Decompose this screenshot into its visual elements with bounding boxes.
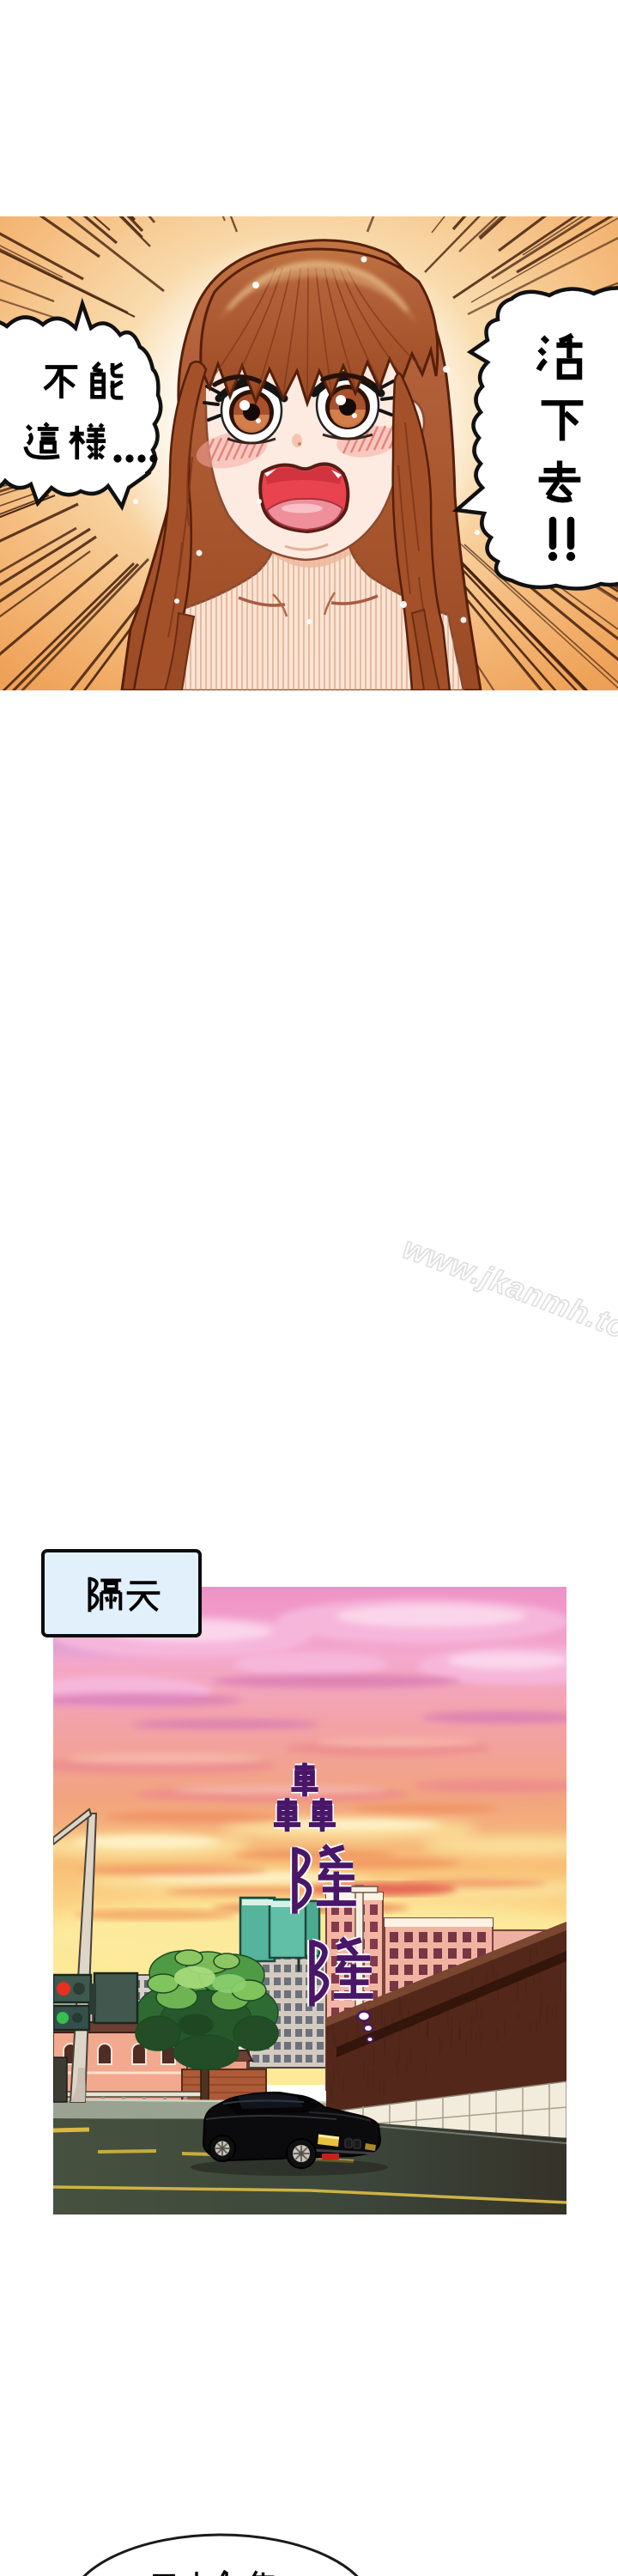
svg-text:www.jkanmh.top: www.jkanmh.top [398,1230,618,1352]
